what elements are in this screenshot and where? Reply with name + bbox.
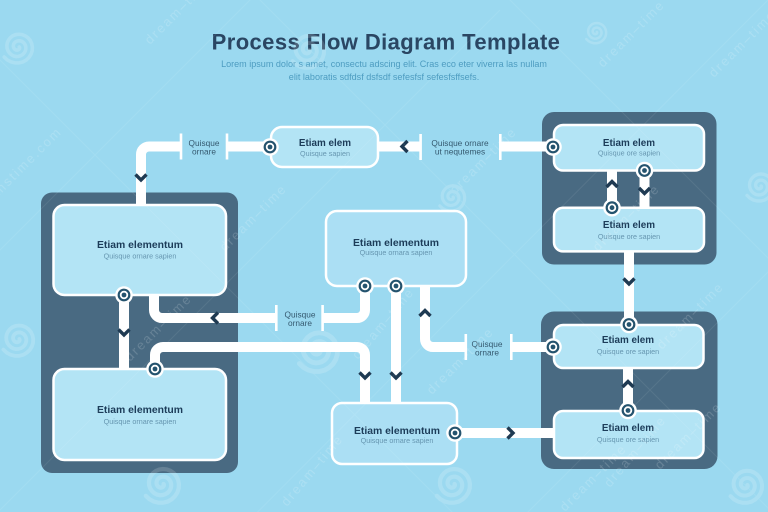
svg-text:Quisque ornare sapien: Quisque ornare sapien	[361, 436, 434, 445]
svg-text:Quisque ore sapien: Quisque ore sapien	[597, 347, 659, 356]
svg-text:Etiam elem: Etiam elem	[602, 335, 654, 346]
svg-text:Quisque sapien: Quisque sapien	[300, 149, 350, 158]
svg-text:Etiam elementum: Etiam elementum	[97, 405, 183, 416]
svg-text:elit laboratis sdfdsf dsfsdf s: elit laboratis sdfdsf dsfsdf sefesfsf se…	[289, 72, 479, 82]
svg-text:ornare: ornare	[288, 318, 312, 328]
svg-text:Quisque ornare sapien: Quisque ornare sapien	[104, 417, 177, 426]
svg-text:Etiam elementum: Etiam elementum	[97, 240, 183, 251]
svg-text:Etiam elem: Etiam elem	[299, 138, 351, 149]
svg-text:Quisque ore sapien: Quisque ore sapien	[598, 149, 660, 158]
svg-text:ornare: ornare	[192, 147, 216, 157]
svg-text:Quisque ornare sapien: Quisque ornare sapien	[104, 252, 177, 261]
svg-text:Lorem ipsum dolor s amet, cons: Lorem ipsum dolor s amet, consectu adsci…	[221, 59, 547, 69]
svg-text:Process Flow Diagram Template: Process Flow Diagram Template	[212, 30, 561, 55]
svg-text:Quisque ornara sapien: Quisque ornara sapien	[360, 248, 433, 257]
